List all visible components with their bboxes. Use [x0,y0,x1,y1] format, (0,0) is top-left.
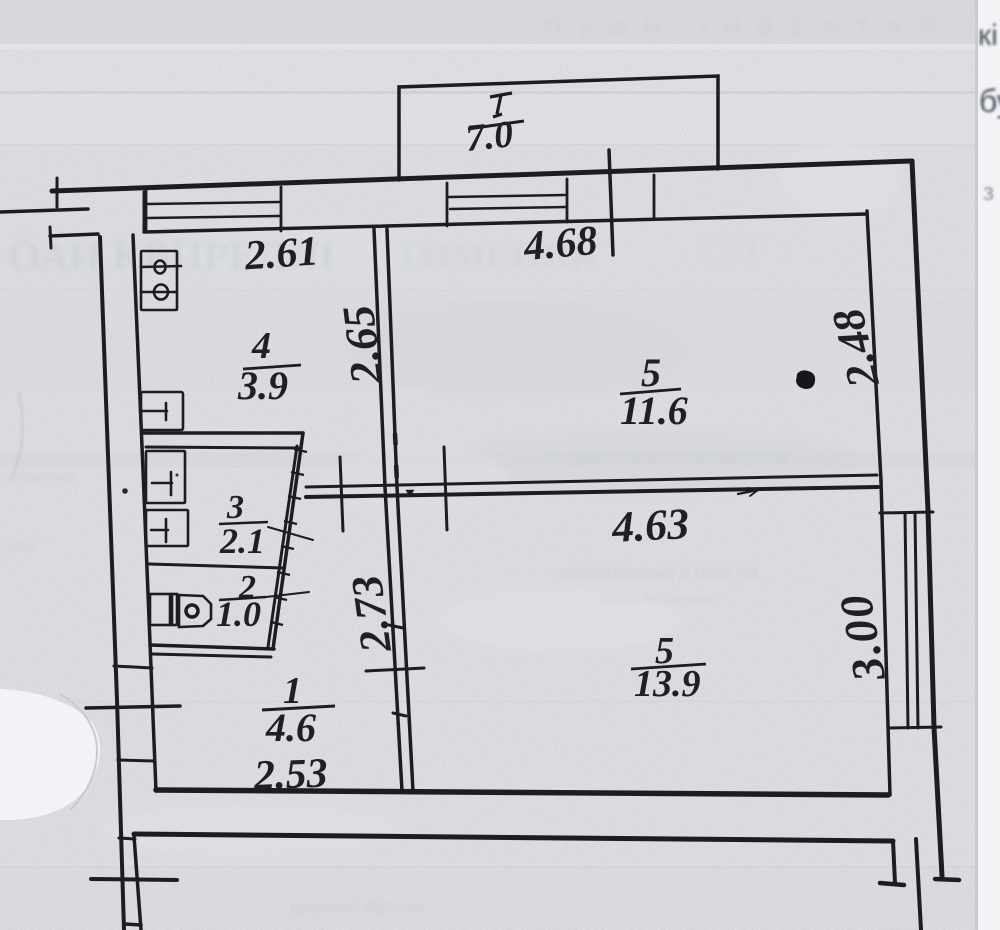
svg-text:2.61: 2.61 [242,228,320,279]
svg-text:11.6: 11.6 [620,388,688,433]
svg-text:2.53: 2.53 [252,751,328,800]
svg-text:4.6: 4.6 [265,705,316,750]
svg-text:ГІТ: ГІТ [700,231,764,273]
svg-text:13.9: 13.9 [634,663,701,705]
svg-text:2.1: 2.1 [219,521,265,561]
svg-text:на праві власності належності: на праві власності належності кв [545,449,789,466]
svg-text:4.63: 4.63 [610,499,690,552]
svg-text:з: з [983,179,994,206]
svg-text:кі: кі [978,19,998,52]
svg-text:3.9: 3.9 [237,363,288,408]
svg-text:план: план [2,538,33,554]
svg-text:7.0: 7.0 [464,113,516,160]
svg-text:документ підготов: документ підготов [290,899,424,916]
svg-text:бу: бу [979,83,1000,119]
svg-text:1.0: 1.0 [216,594,261,634]
svg-text:4: 4 [251,325,271,367]
svg-text:запис про право: запис про право [600,591,713,608]
svg-text:зареєстровано в книзі під: зареєстровано в книзі під [558,563,759,582]
svg-text:4.68: 4.68 [521,218,599,270]
svg-text:2.65: 2.65 [333,303,392,388]
